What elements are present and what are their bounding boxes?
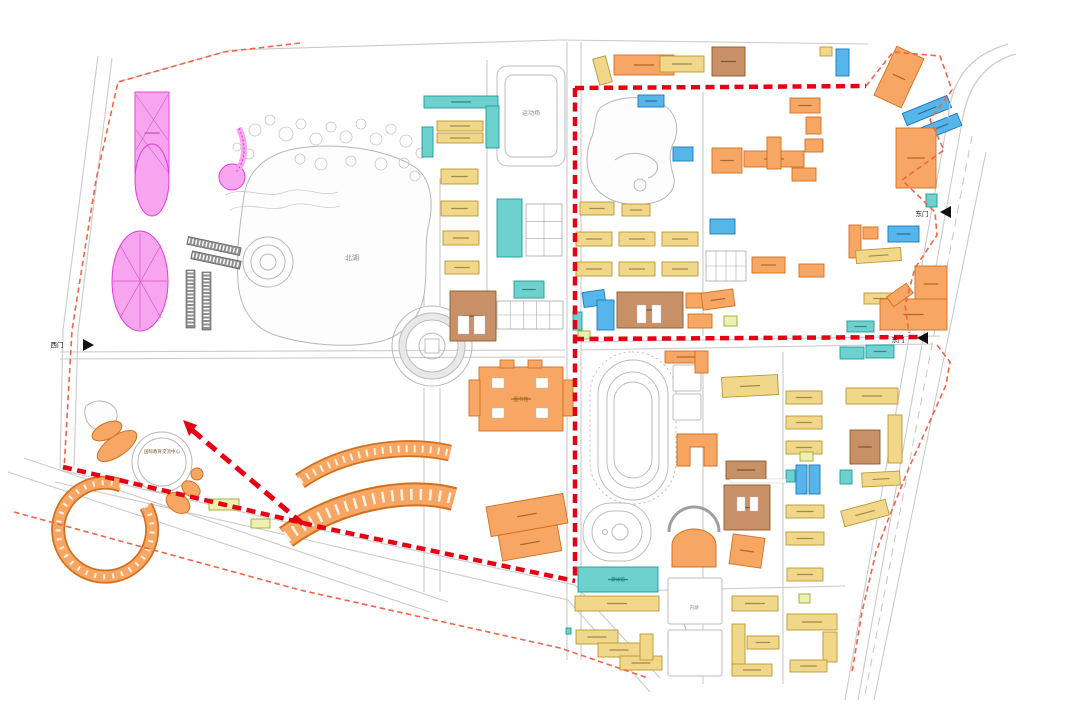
building (800, 452, 813, 461)
courtyard (536, 408, 548, 418)
building (695, 351, 708, 373)
building (688, 314, 712, 328)
road-line (60, 357, 565, 359)
building-shape (677, 434, 717, 466)
building (805, 139, 823, 152)
tree (356, 119, 366, 129)
selection-boundary-dashed (575, 86, 866, 88)
map-label: 图书馆 (513, 396, 528, 403)
courtyard (637, 305, 646, 323)
courtyard (730, 479, 786, 483)
tree (400, 135, 412, 147)
building (469, 380, 480, 416)
road-line (60, 350, 565, 352)
tree (370, 133, 382, 145)
road-line (864, 136, 972, 700)
tree (233, 143, 241, 151)
tree (279, 127, 293, 141)
tree (310, 133, 322, 145)
building (792, 168, 816, 181)
sports-field (673, 394, 701, 420)
building (497, 199, 522, 257)
building (528, 360, 542, 368)
sports-field (614, 382, 652, 478)
courtyard (492, 378, 504, 388)
courtyard (652, 305, 661, 323)
building (566, 628, 571, 634)
building (597, 300, 614, 330)
courtyard (536, 378, 548, 388)
water-body (587, 98, 677, 205)
building (799, 264, 824, 277)
building (823, 632, 837, 662)
building-shape (672, 529, 716, 567)
campus-map-canvas: 西门东门东门北湖运动场国际教育交流中心图书馆游泳馆内湖 (0, 0, 1072, 702)
building (836, 49, 849, 76)
building (840, 347, 864, 359)
map-label: 游泳馆 (611, 576, 625, 583)
gate-label: 西门 (51, 340, 64, 349)
map-label: 国际教育交流中心 (144, 448, 180, 455)
tree (296, 119, 306, 129)
building (796, 465, 807, 494)
tree (265, 115, 275, 125)
gate-label: 东门 (916, 209, 929, 218)
building (809, 465, 820, 494)
circular-feature (138, 438, 186, 486)
building-shape (286, 494, 454, 537)
building (806, 117, 821, 134)
road-line (560, 40, 868, 44)
building (820, 47, 832, 56)
building (863, 227, 878, 239)
tree (386, 124, 396, 134)
water-body (237, 146, 431, 345)
road-line (118, 40, 560, 82)
courtyard (474, 316, 485, 334)
sports-field (668, 630, 722, 676)
building (500, 360, 514, 368)
building (786, 470, 795, 482)
tree (340, 131, 352, 143)
building (640, 634, 653, 660)
building (767, 137, 781, 169)
building (673, 147, 693, 161)
building (191, 468, 203, 480)
gate-label: 东门 (892, 335, 905, 344)
building (563, 380, 573, 416)
building (593, 56, 613, 85)
sports-field (668, 578, 722, 624)
courtyard (492, 408, 504, 418)
building (840, 470, 852, 484)
tree (249, 124, 261, 136)
building (710, 219, 735, 234)
map-label: 北湖 (345, 253, 359, 262)
building (888, 415, 902, 463)
campus-master-plan: 西门东门东门北湖运动场国际教育交流中心图书馆游泳馆内湖 (0, 0, 1072, 702)
building-shape (669, 507, 719, 532)
sports-field (592, 511, 642, 553)
building (251, 519, 270, 528)
map-label: 内湖 (690, 604, 699, 611)
building (425, 339, 439, 353)
building (486, 106, 499, 148)
building (724, 316, 737, 326)
building (799, 594, 810, 603)
courtyard (458, 316, 469, 334)
courtyard (737, 497, 745, 511)
map-label: 运动场 (522, 109, 540, 117)
building-shape (948, 44, 1008, 118)
courtyard (750, 497, 758, 511)
gate-arrow-icon (83, 339, 94, 351)
building (422, 127, 433, 157)
building (135, 144, 169, 216)
tree (326, 122, 336, 132)
